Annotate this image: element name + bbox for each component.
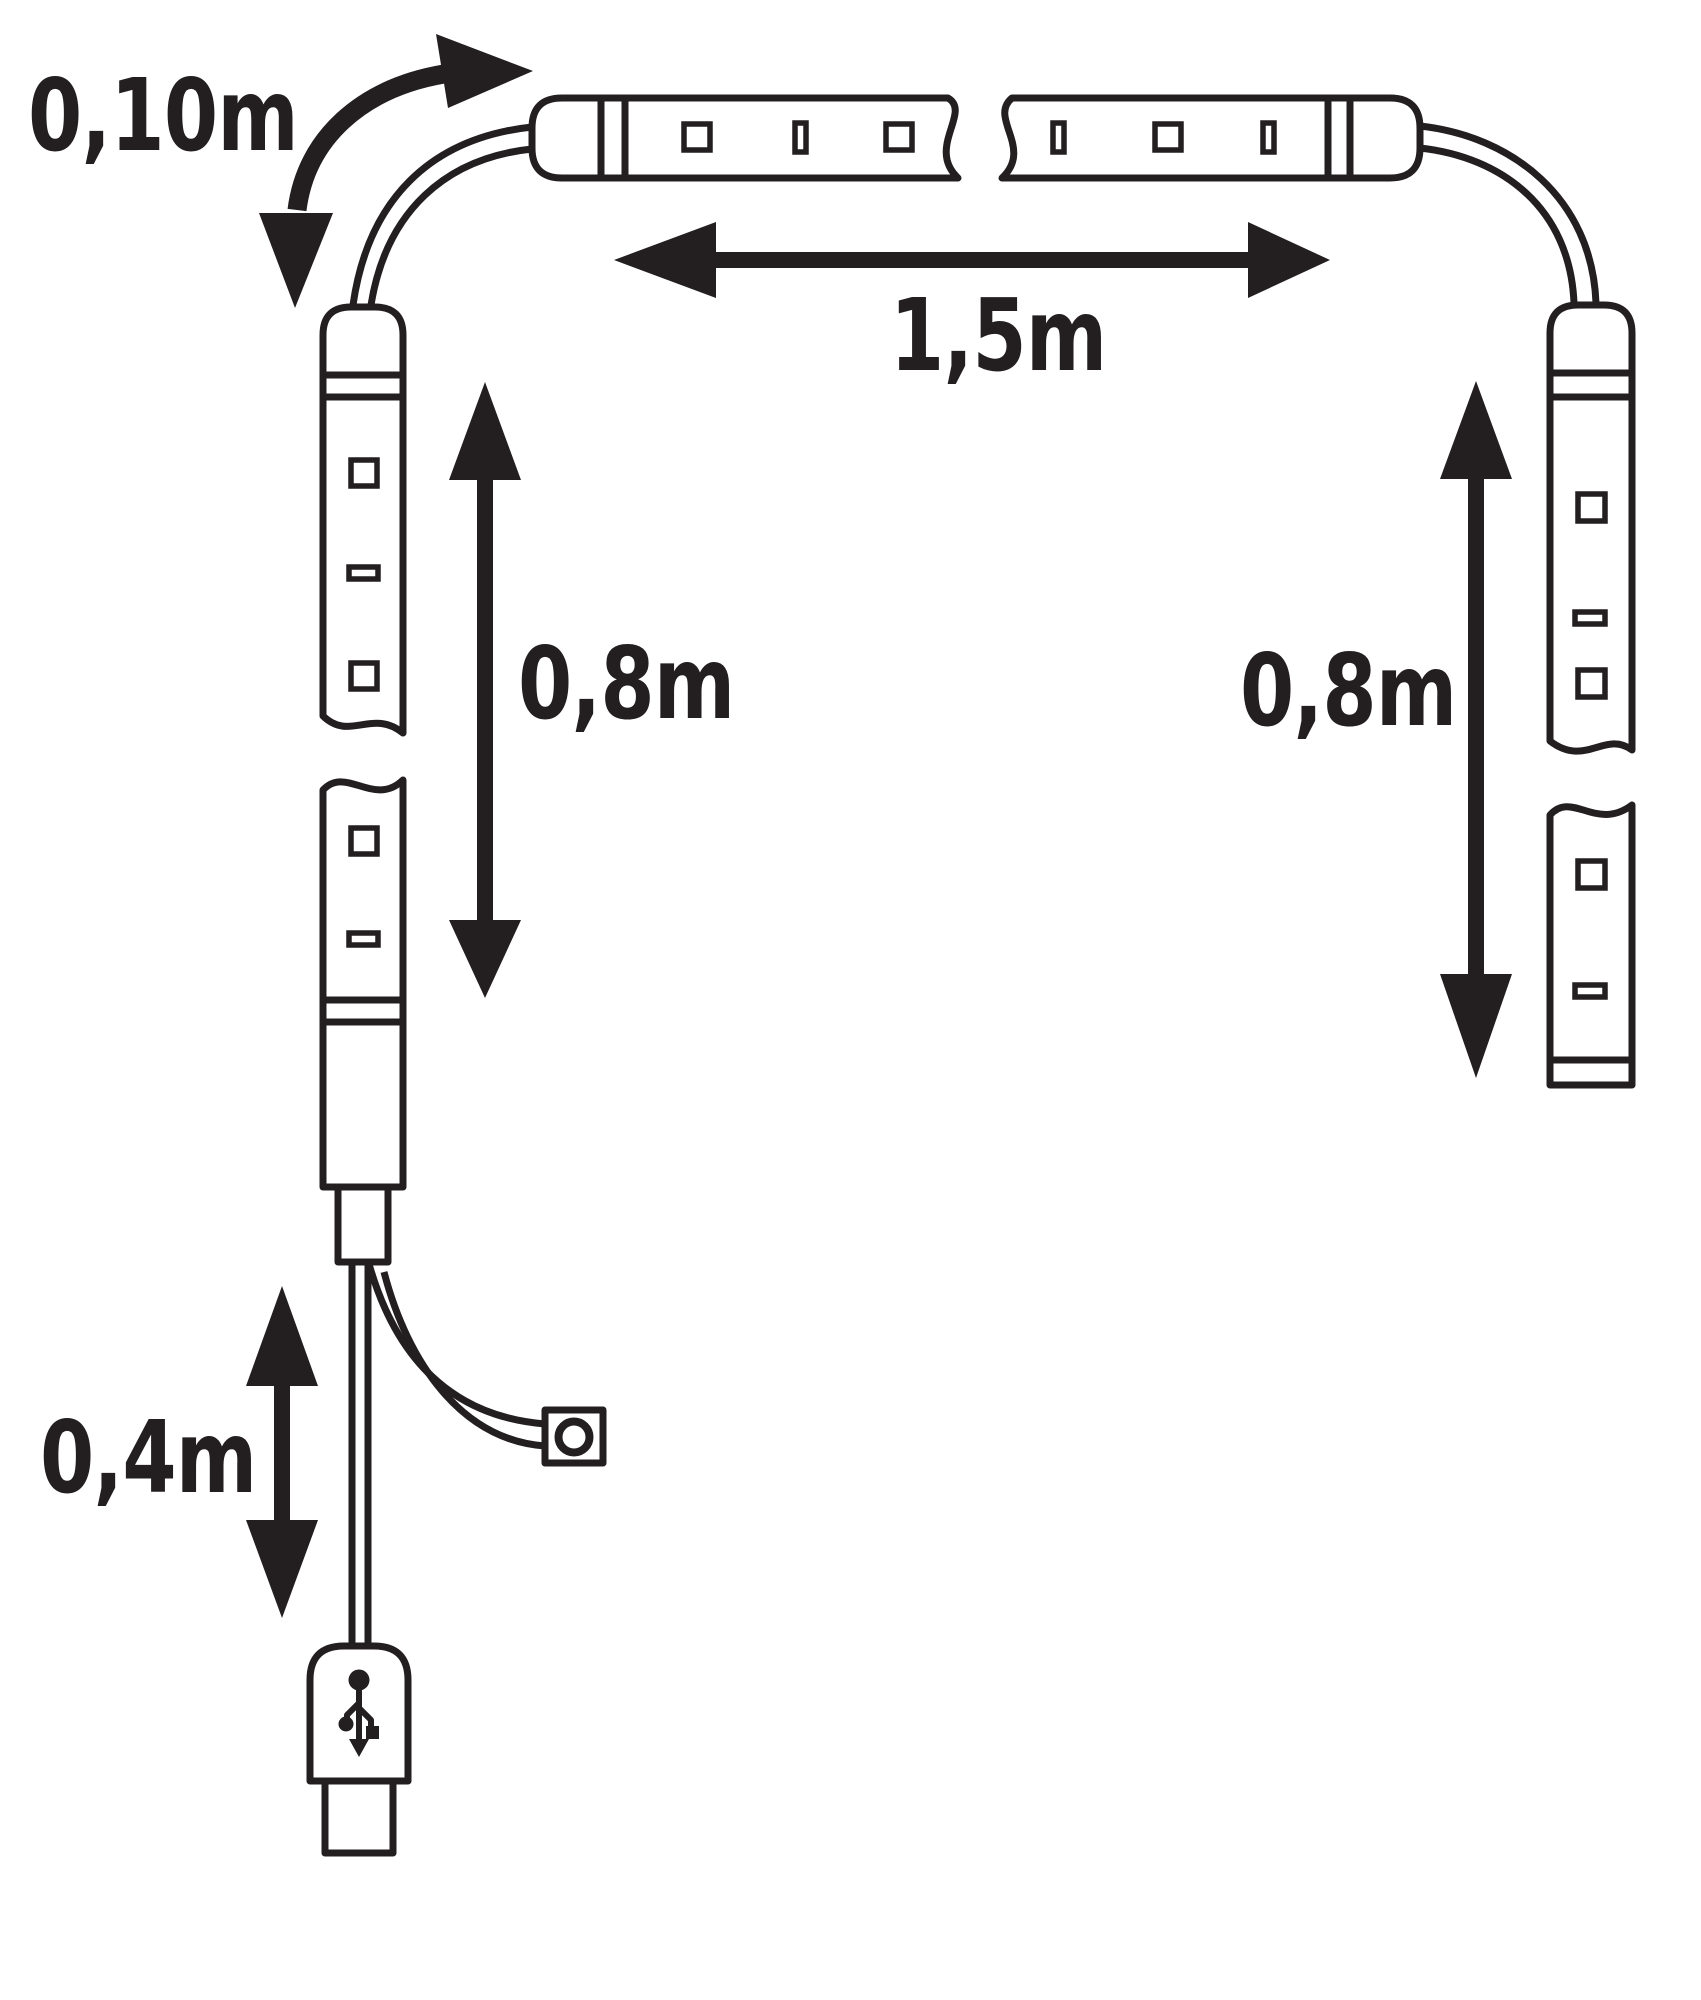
right-led-strip — [1550, 305, 1632, 1085]
led-strip-dimension-diagram: 0,10m 1,5m 0,8m 0,8m 0,4m — [0, 0, 1701, 2000]
label-usb-cable-length: 0,4m — [40, 1408, 256, 1508]
arrow-right-icon — [436, 34, 533, 108]
arrow-left-icon — [614, 222, 716, 298]
dimension-arrow-0-4m — [246, 1286, 318, 1618]
arrow-up-icon — [246, 1286, 318, 1386]
dimension-arrow-left-0-8m — [449, 382, 521, 998]
arrow-down-icon — [259, 213, 333, 308]
curved-cable-arrow — [259, 34, 533, 308]
right-strip-segment-2 — [1550, 805, 1632, 1085]
right-connector-cable — [1420, 126, 1596, 303]
diagram-artwork — [0, 0, 1701, 2000]
label-right-strip-length: 0,8m — [1240, 641, 1456, 741]
arrow-down-icon — [1440, 974, 1512, 1078]
left-led-strip — [323, 307, 403, 1262]
strip-end-connector — [338, 1187, 388, 1262]
label-horizontal-strip-length: 1,5m — [890, 286, 1106, 386]
arrow-up-icon — [1440, 381, 1512, 479]
arrow-right-icon — [1248, 222, 1330, 298]
left-connector-cable — [353, 127, 532, 305]
label-top-cable-length: 0,10m — [28, 66, 298, 166]
usb-plug — [310, 1646, 408, 1853]
inline-switch — [545, 1410, 603, 1463]
horizontal-led-strip — [532, 98, 1420, 178]
arrow-down-icon — [246, 1520, 318, 1618]
label-left-strip-length: 0,8m — [518, 634, 734, 734]
round-button-icon — [559, 1422, 590, 1453]
usb-cable — [352, 1262, 368, 1646]
arrow-down-icon — [449, 920, 521, 998]
usb-plug-metal — [325, 1781, 393, 1853]
switch-cable — [369, 1264, 545, 1446]
arrow-up-icon — [449, 382, 521, 480]
